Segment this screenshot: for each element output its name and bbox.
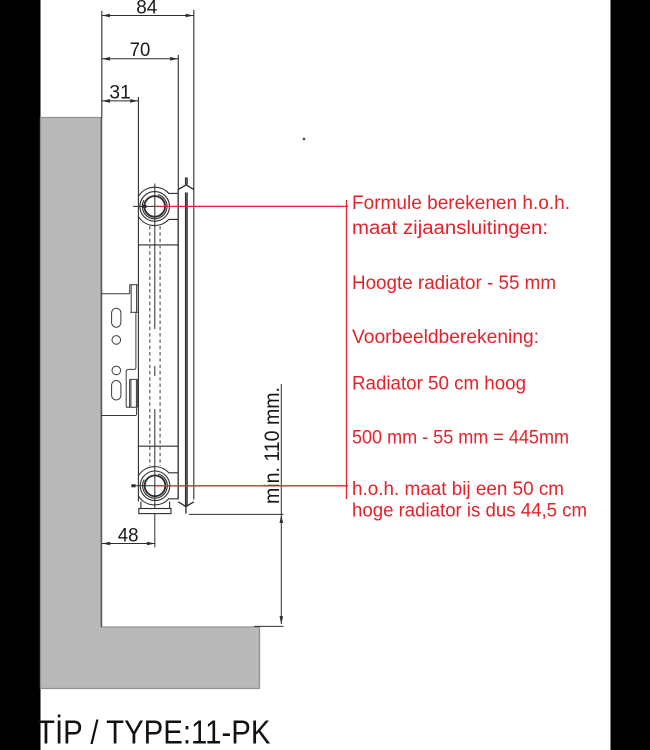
svg-text:hoge radiator is dus 44,5 cm: hoge radiator is dus 44,5 cm — [352, 500, 587, 522]
svg-text:Hoogte radiator - 55 mm: Hoogte radiator - 55 mm — [352, 272, 556, 294]
svg-text:70: 70 — [130, 40, 151, 61]
svg-text:TİP / TYPE:11-PK: TİP / TYPE:11-PK — [37, 714, 271, 750]
svg-text:Voorbeeldberekening:: Voorbeeldberekening: — [352, 326, 539, 348]
svg-text:500 mm - 55 mm = 445mm: 500 mm - 55 mm = 445mm — [352, 427, 569, 449]
svg-text:48: 48 — [118, 526, 139, 547]
svg-text:84: 84 — [136, 0, 157, 19]
svg-text:maat zijaansluitingen:: maat zijaansluitingen: — [352, 217, 548, 239]
svg-text:min. 110 mm.: min. 110 mm. — [261, 387, 284, 504]
svg-text:31: 31 — [109, 83, 130, 104]
svg-text:h.o.h. maat bij een 50 cm: h.o.h. maat bij een 50 cm — [352, 478, 564, 500]
svg-text:Radiator 50 cm hoog: Radiator 50 cm hoog — [352, 373, 526, 395]
svg-text:Formule berekenen h.o.h.: Formule berekenen h.o.h. — [352, 192, 570, 214]
